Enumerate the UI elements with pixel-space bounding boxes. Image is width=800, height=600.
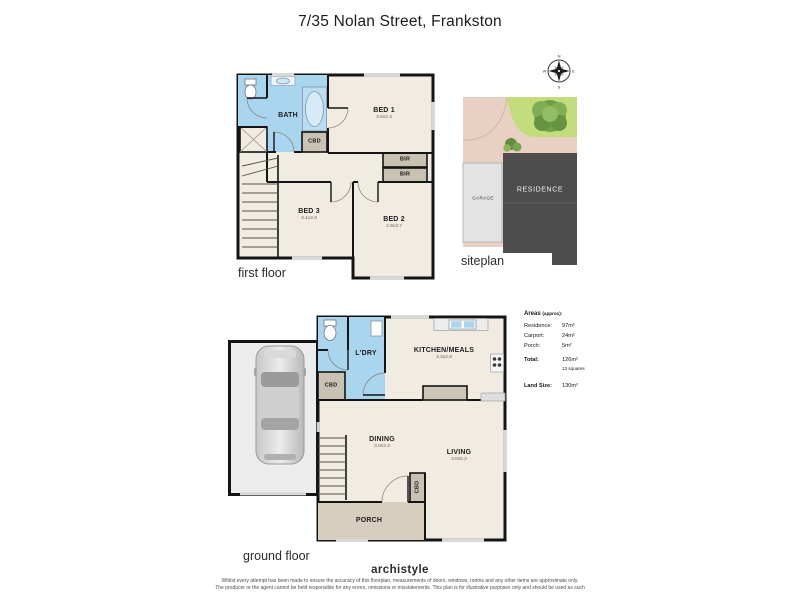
area-row-porch: Porch:5m² [524,341,612,351]
first-floor-plan: BATH BED 1 3.6x2.4 CBD BIR BIR BED 3 3.1… [236,70,436,285]
first-floor-label: first floor [238,266,286,280]
ground-floor-svg [228,312,518,564]
kitchen-counter [434,319,488,331]
cbd-cupboard-1 [318,372,345,400]
garage-door [240,492,306,495]
floor-transition [481,393,505,401]
kitchen-bench [423,386,467,400]
site-garage [463,163,502,242]
laundry-trough-icon [371,321,382,336]
areas-heading: Areas (approx): [524,311,612,317]
compass-w: W [543,69,547,74]
page-title: 7/35 Nolan Street, Frankston [0,13,800,31]
site-residence [503,153,577,265]
bathtub-icon [303,87,327,131]
stove-icon [491,354,504,372]
porch-area [318,502,425,540]
linen-cupboard [240,127,267,152]
toilet-icon-ground [324,320,336,341]
compass-s: S [558,85,561,90]
archistyle-logo: archistyle [0,564,800,576]
disclaimer: Whilst every attempt has been made to en… [0,578,800,593]
areas-summary: Areas (approx): Residence:97m² Carport:2… [524,311,612,391]
compass-n: N [558,54,561,59]
site-garage-label: GARAGE [472,196,493,201]
area-row-carport: Carport:24m² [524,331,612,341]
car-icon [254,346,306,464]
compass-icon: N E S W [543,54,576,90]
cbd-cupboard [302,132,327,152]
compass-e: E [572,69,575,74]
area-row-total: Total: 126m²13 squares [524,355,612,372]
cbd-cupboard-2 [410,473,425,502]
ground-floor-label: ground floor [243,549,310,563]
bir-1 [383,153,427,167]
area-row-land: Land Size:130m² [524,381,612,391]
ground-floor-plan: L'DRY CBD KITCHEN/MEALS 4.3x2.8 DINING 3… [228,312,518,564]
disclaimer-line-1: Whilst every attempt has been made to en… [0,578,800,585]
toilet-icon [245,79,256,99]
vanity-icon [271,77,295,86]
area-row-residence: Residence:97m² [524,321,612,331]
first-floor-svg [236,70,436,285]
siteplan-svg: N E S W [455,48,585,273]
floorplan-page: { "title": "7/35 Nolan Street, Frankston… [0,0,800,600]
tree-icon [532,100,567,132]
siteplan: N E S W GARAGE RESIDENCE siteplan [455,48,585,273]
bir-2 [383,168,427,182]
site-residence-label: RESIDENCE [517,187,563,194]
disclaimer-line-2: The producer or the agent cannot be held… [0,585,800,592]
footer: archistyle Whilst every attempt has been… [0,564,800,593]
siteplan-label: siteplan [461,254,504,268]
